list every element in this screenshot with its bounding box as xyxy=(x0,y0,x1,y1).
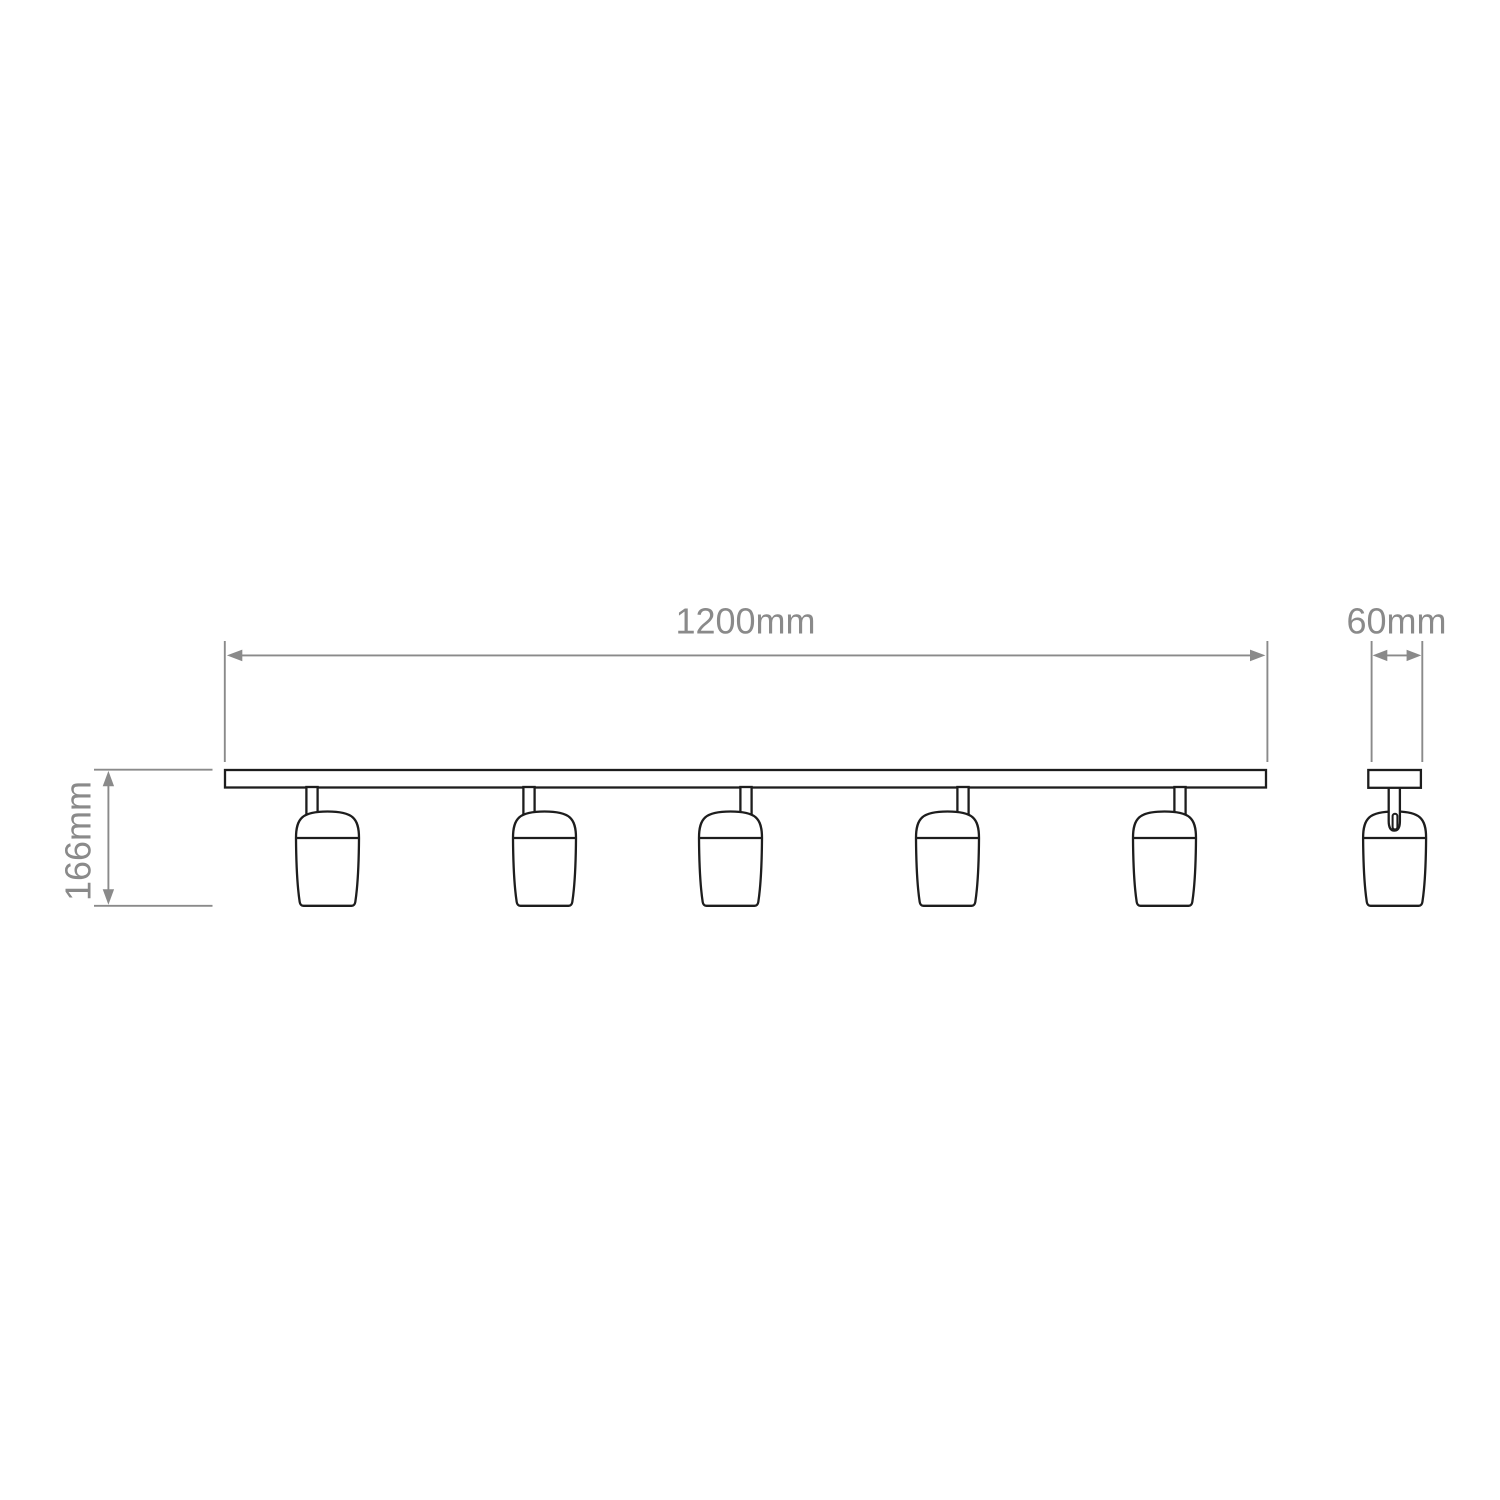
svg-text:166mm: 166mm xyxy=(58,781,99,901)
svg-text:60mm: 60mm xyxy=(1346,601,1446,642)
svg-text:1200mm: 1200mm xyxy=(675,601,815,642)
